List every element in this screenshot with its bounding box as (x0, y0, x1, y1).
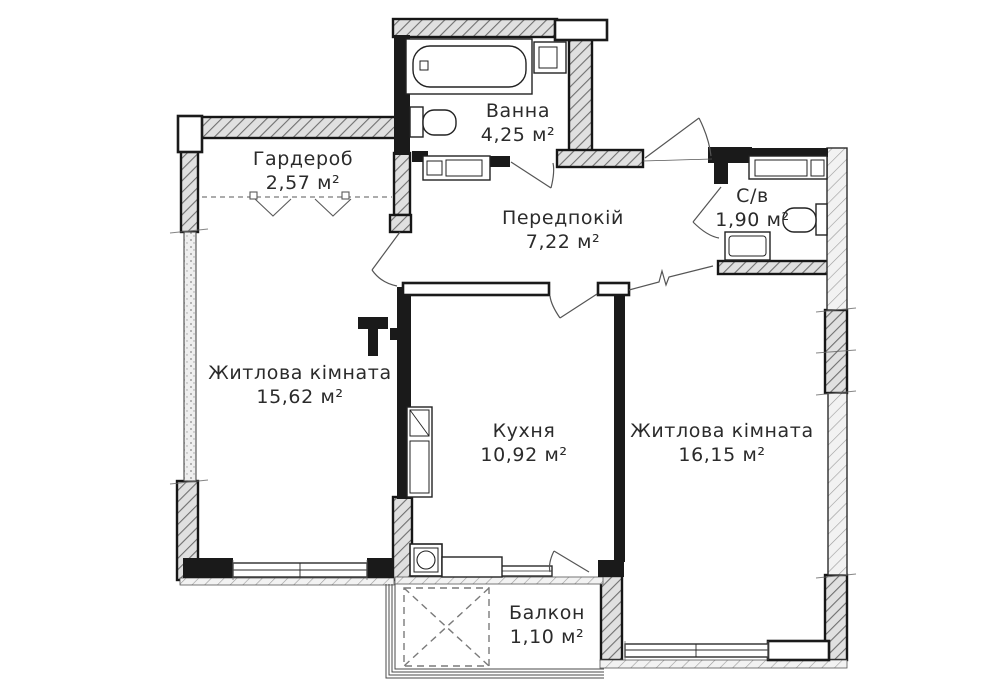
room-area: 15,62 м² (200, 385, 400, 409)
fridge-cabinet-kitchen (407, 407, 432, 497)
doors (372, 118, 721, 572)
room-area: 10,92 м² (444, 443, 604, 467)
room-area: 1,10 м² (482, 625, 612, 649)
room-name: С/в (700, 184, 805, 208)
infill-wall (184, 232, 196, 481)
room-label-hallway: Передпокій 7,22 м² (463, 206, 663, 254)
room-area: 4,25 м² (438, 123, 598, 147)
room-label-bathroom: Ванна 4,25 м² (438, 99, 598, 147)
room-name: Гардероб (203, 147, 403, 171)
room-name: Балкон (482, 601, 612, 625)
room-name: Передпокій (463, 206, 663, 230)
room-label-living-room-1: Житлова кімната 15,62 м² (200, 361, 400, 409)
room-label-wardrobe: Гардероб 2,57 м² (203, 147, 403, 195)
stove-kitchen (410, 544, 442, 576)
room-name: Ванна (438, 99, 598, 123)
kitchen-counter (442, 557, 502, 577)
room-area: 1,90 м² (700, 208, 805, 232)
sink-counter-bathroom (423, 156, 490, 180)
room-area: 2,57 м² (203, 171, 403, 195)
room-label-balcony: Балкон 1,10 м² (482, 601, 612, 649)
room-name: Кухня (444, 419, 604, 443)
washing-machine (534, 42, 566, 73)
wardrobe-rail-chevrons (202, 192, 392, 216)
room-name: Житлова кімната (200, 361, 400, 385)
room-label-living-room-2: Житлова кімната 16,15 м² (622, 419, 822, 467)
shower-tray-wc (725, 232, 770, 260)
bathtub (406, 39, 532, 94)
balcony-hatch-cross (404, 588, 489, 666)
sink-counter-wc (749, 156, 827, 179)
room-label-kitchen: Кухня 10,92 м² (444, 419, 604, 467)
room-name: Житлова кімната (622, 419, 822, 443)
room-area: 7,22 м² (463, 230, 663, 254)
floor-plan: Гардероб 2,57 м² Ванна 4,25 м² Передпокі… (0, 0, 1000, 682)
room-area: 16,15 м² (622, 443, 822, 467)
room-label-wc: С/в 1,90 м² (700, 184, 805, 232)
